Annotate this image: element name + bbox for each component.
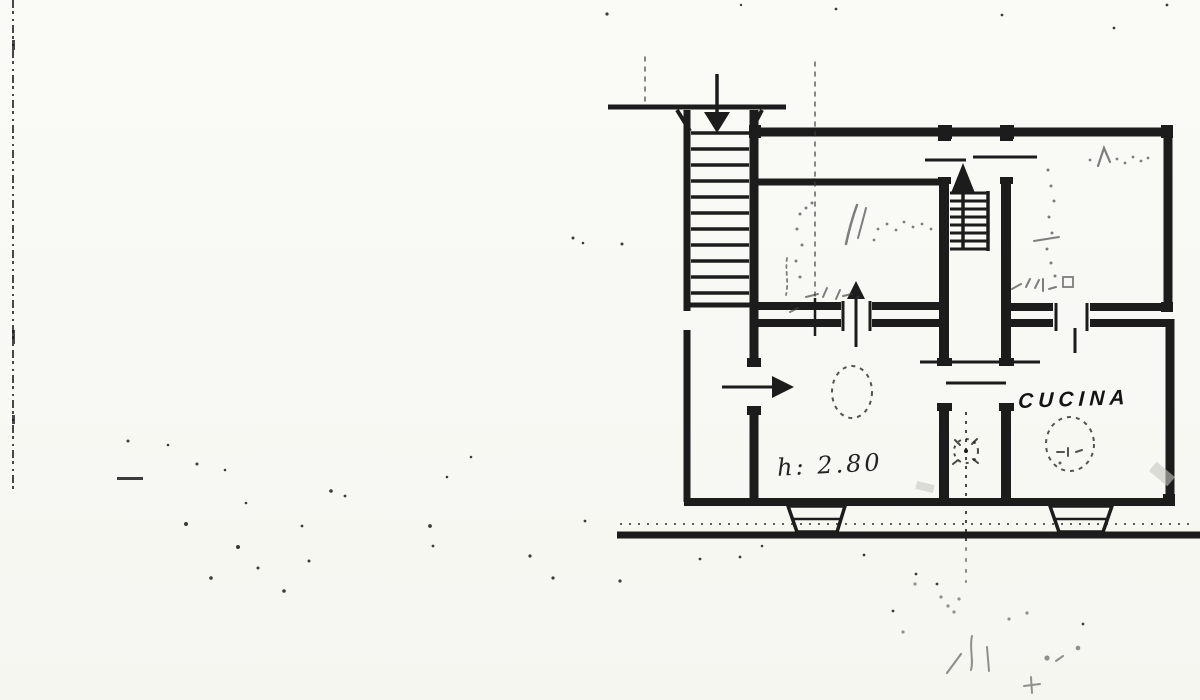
stair-up-arrow-icon [951, 163, 975, 250]
foundation-footing-left [788, 506, 845, 532]
scan-edge-artifact [12, 0, 15, 491]
kitchen-lamp-symbol [1046, 417, 1094, 471]
door-up-arrow-icon [847, 281, 865, 347]
floor-plan-drawing [0, 0, 1200, 700]
scanned-floor-plan-page: CUCINA h: 2.80 [0, 0, 1200, 700]
interior-staircase [950, 191, 988, 251]
faded-bottom-marks [901, 582, 1080, 693]
room-top-right [1006, 128, 1173, 353]
entrance-arrow-icon [722, 376, 794, 398]
room-top-middle [750, 298, 944, 336]
foundation-footing-right [1050, 506, 1112, 532]
ground-line [617, 524, 1200, 535]
height-label: h: 2.80 [776, 448, 883, 481]
ceiling-lamp-symbol [832, 366, 872, 418]
pencil-annotations [786, 148, 1149, 312]
exterior-staircase [677, 110, 762, 311]
corridor-fan-symbol [953, 439, 978, 464]
stair-down-arrow-icon [704, 74, 730, 133]
scan-smudges [915, 462, 1175, 493]
kitchen-label: CUCINA [1018, 386, 1130, 414]
